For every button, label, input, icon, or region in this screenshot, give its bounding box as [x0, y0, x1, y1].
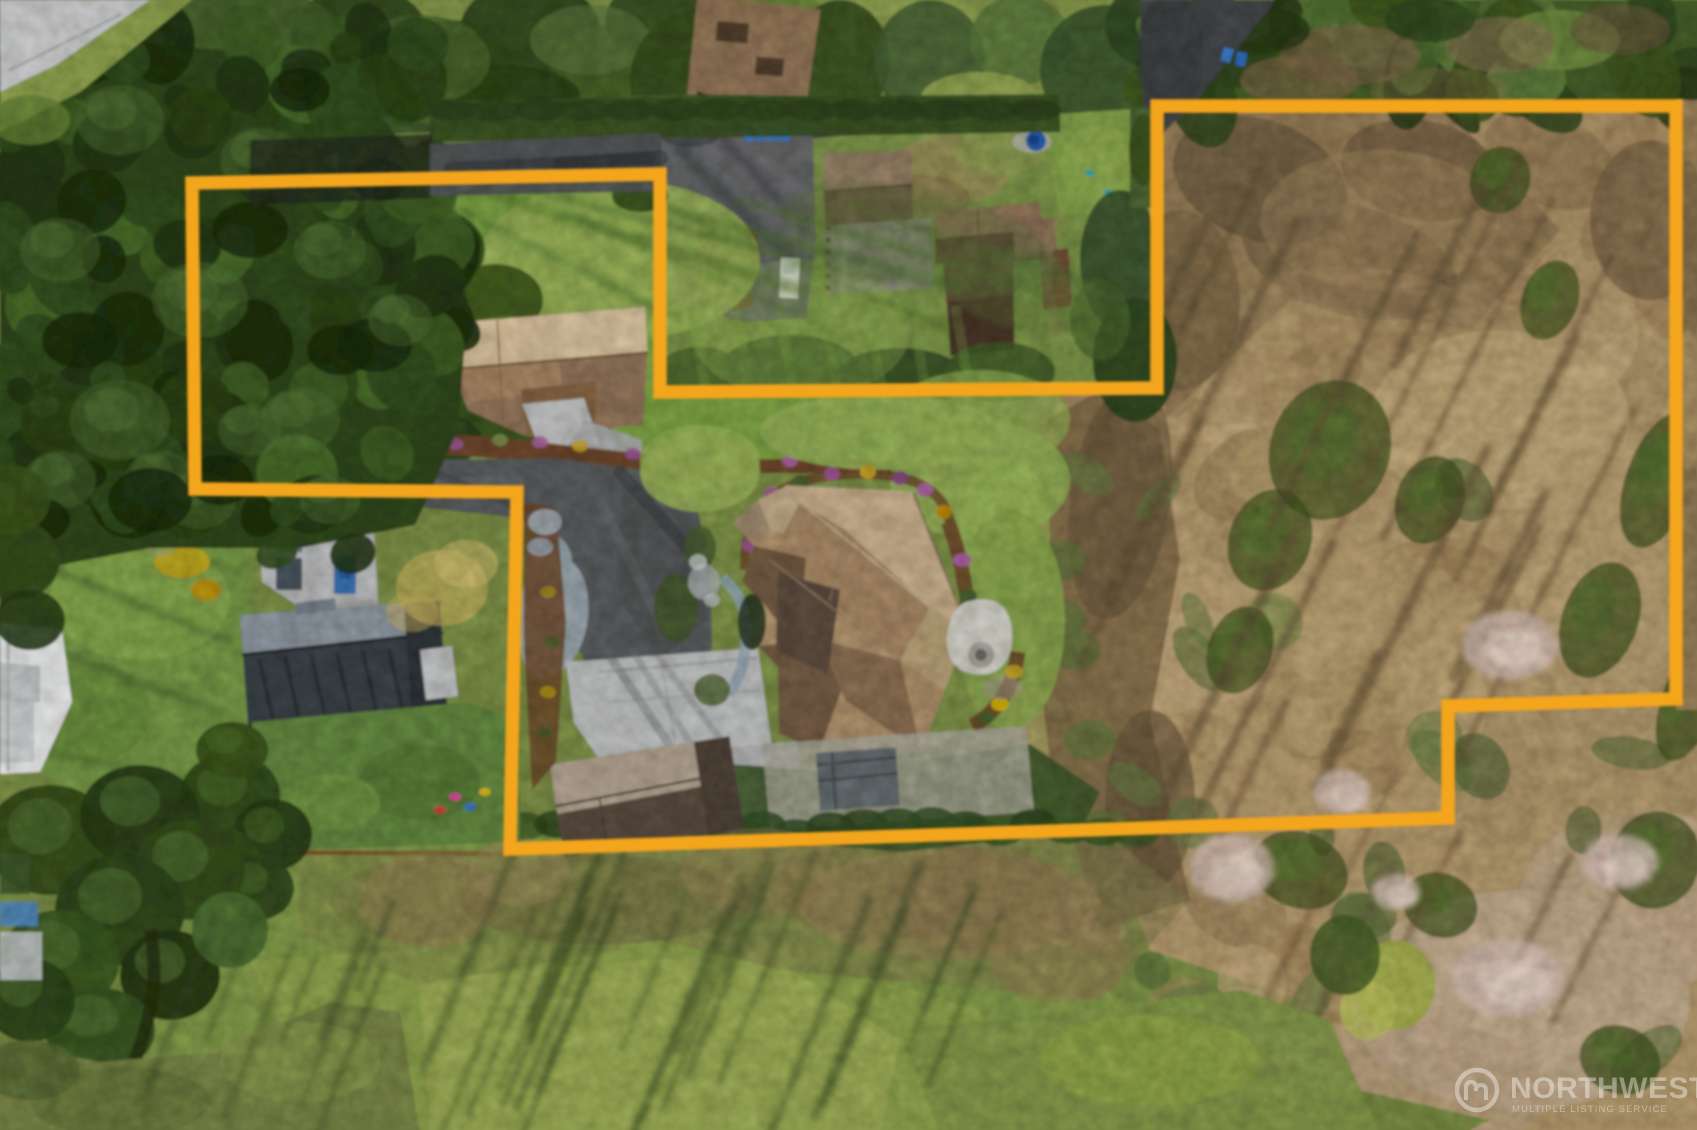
svg-text:NORTHWEST: NORTHWEST	[1510, 1072, 1697, 1105]
svg-text:MULTIPLE LISTING SERVICE: MULTIPLE LISTING SERVICE	[1512, 1104, 1668, 1115]
